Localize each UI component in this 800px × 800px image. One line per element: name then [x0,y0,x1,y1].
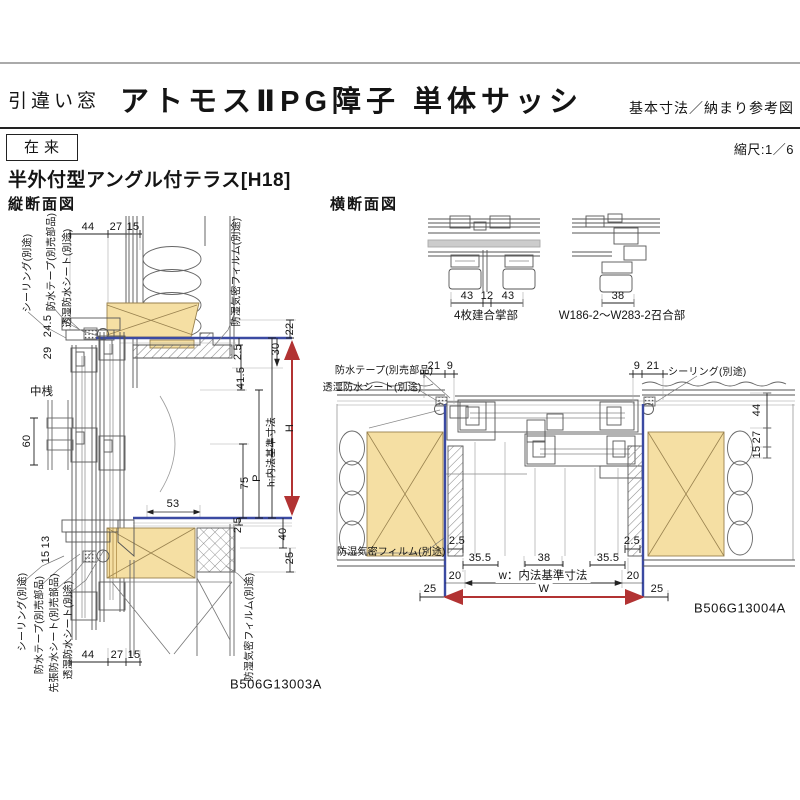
vs-dim-29: 29 [42,347,54,360]
vs-bottom-dim-44: 44 [82,649,95,661]
hs-dim-25-right: 25 [651,583,664,595]
hs-dim-21-right: 21 [647,360,660,372]
vs-label-tape-bottom: 防水テープ(別売部品) [31,576,46,674]
hs-dim-35-5-right: 35.5 [597,552,620,564]
vs-dim-13: 13 [40,536,52,549]
hs-dim-9-left: 9 [447,360,453,372]
catalog-page: { "header": { "window_type": "引違い窓", "ti… [0,0,800,800]
hs-drawing-code: B506G13004A [694,601,786,616]
vs-top-dim-44: 44 [82,221,95,233]
vs-dim-60: 60 [21,435,33,448]
vs-dim-22: 22 [284,323,296,336]
hs-dim-2-5-right: 2.5 [624,535,640,547]
vs-label-sealing-top: シーリング(別途) [19,234,34,312]
hs-label-tape: 防水テープ(別売部品) [335,362,433,377]
window-type-label: 引違い窓 [8,86,100,113]
vs-dim-24-5: 24.5 [42,315,54,338]
hs-label-sealing: シーリング(別途) [668,363,746,378]
hs-edge-dim-15: 15 [751,446,763,459]
vs-bottom-dim-15: 15 [128,649,141,661]
vs-top-dim-15: 15 [127,221,140,233]
hs-detailB-dim-38: 38 [612,290,625,302]
hs-detailA-caption: 4枚建合掌部 [454,307,518,323]
hs-dim-38: 38 [538,552,551,564]
vs-dim-41-5: 41.5 [235,367,247,390]
vs-label-sheet-bottom: 透湿防水シート(別途) [60,581,75,680]
hs-label-sheet: 透湿防水シート(別途) [323,379,422,394]
vs-label-film-bottom: 防湿気密フィルム(別途) [241,573,256,682]
hs-detailA-dim-43a: 43 [461,290,474,302]
hs-dim-W: W [536,583,553,595]
scale-label: 縮尺:1／6 [734,139,794,158]
vs-top-dim-27: 27 [110,221,123,233]
vs-dim-75: 75 [239,477,251,490]
vs-dim-2-5-bottom: 2.5 [232,517,244,533]
hs-dim-25-left: 25 [424,583,437,595]
vs-label-tape-top: 防水テープ(別売部品) [43,213,58,311]
product-heading: 半外付型アングル付テラス[H18] [8,165,291,192]
vs-mid-rail-label: 中桟 [30,383,53,399]
hs-detailB-caption: W186-2〜W283-2召合部 [559,307,686,323]
vs-dim-25: 25 [284,552,296,565]
vs-label-presheet-bottom: 先張防水シート(別売部品) [46,573,61,692]
hs-edge-dim-44: 44 [751,404,763,417]
hs-label-film: 防湿気密フィルム(別途) [337,543,446,558]
hs-dim-2-5-left: 2.5 [449,535,465,547]
vs-dim-30: 30 [270,343,282,356]
vs-bottom-dim-27: 27 [111,649,124,661]
technical-drawing [0,0,800,800]
construction-method-badge: 在来 [6,134,78,161]
vs-h-standard-label: h:内法基準寸法 [263,417,278,487]
vs-dim-15-left: 15 [40,551,52,564]
horizontal-section-title: 横断面図 [330,193,398,214]
vs-label-sealing-bottom: シーリング(別途) [14,573,29,651]
vs-label-film-top: 防湿気密フィルム(別途) [228,218,243,327]
hs-dim-20-right: 20 [627,570,640,582]
vs-label-sheet-top: 透湿防水シート(別途) [59,229,74,328]
hs-dim-9-right: 9 [634,360,640,372]
vs-dim-40: 40 [277,528,289,541]
hs-detailA-dim-43b: 43 [502,290,515,302]
vs-dim-2-5-top: 2.5 [232,344,244,360]
vs-dim-H: H [284,424,296,432]
vs-drawing-code: B506G13003A [230,677,322,692]
vertical-section-title: 縦断面図 [8,193,76,214]
hs-dim-35-5-left: 35.5 [469,552,492,564]
vs-dim-p: P [251,474,263,482]
hs-dim-20-left: 20 [449,570,462,582]
header-right-note: 基本寸法／納まり参考図 [629,98,794,118]
page-title: アトモスⅡPG障子 単体サッシ [120,78,583,120]
hs-w-standard-label: w：内法基準寸法 [496,567,591,583]
vs-dim-53: 53 [167,498,180,510]
hs-edge-dim-27: 27 [751,431,763,444]
hs-dim-21-left: 21 [428,360,441,372]
hs-detailA-dim-12: 12 [481,290,494,302]
